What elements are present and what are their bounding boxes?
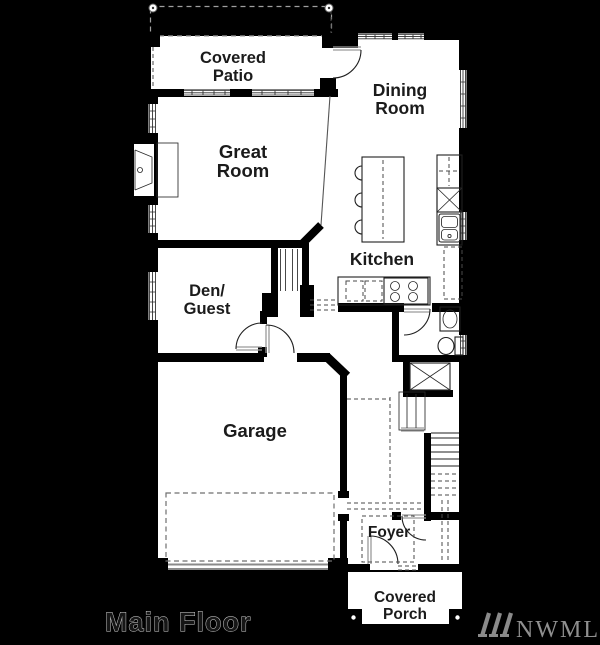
plan-caption: Main Floor: [105, 607, 252, 637]
dining-room-label-line1: Dining: [373, 80, 427, 100]
window: [252, 90, 314, 97]
great-room-label-line1: Great: [219, 141, 267, 162]
porch-post-icon: [449, 609, 466, 626]
nwmls-wordmark: NWMLS: [516, 617, 600, 643]
garage-label: Garage: [223, 420, 287, 441]
window: [398, 34, 424, 40]
porch-post-icon: [345, 609, 362, 626]
covered-porch-label-line1: Covered: [374, 589, 436, 606]
covered-patio-label-line2: Patio: [213, 67, 253, 85]
kitchen-label: Kitchen: [350, 249, 414, 269]
foyer-label: Foyer: [368, 524, 410, 541]
den-guest-label-line1: Den/: [189, 282, 225, 300]
window: [149, 272, 157, 320]
roof-post-icon: [325, 4, 333, 12]
roof-post-icon: [149, 4, 157, 12]
window: [358, 34, 392, 40]
window: [149, 205, 157, 233]
window: [149, 104, 157, 133]
floor-plan-image: Covered Patio Dining Room Great Room Kit…: [0, 0, 600, 645]
den-guest-label-line2: Guest: [184, 300, 231, 318]
great-room-label-line2: Room: [217, 160, 269, 181]
covered-porch-label-line2: Porch: [383, 606, 427, 623]
window: [460, 70, 467, 128]
dining-room-label-line2: Room: [375, 98, 425, 118]
covered-patio-label-line1: Covered: [200, 49, 266, 67]
window: [184, 90, 230, 97]
floor-plan-svg: Covered Patio Dining Room Great Room Kit…: [0, 0, 600, 645]
